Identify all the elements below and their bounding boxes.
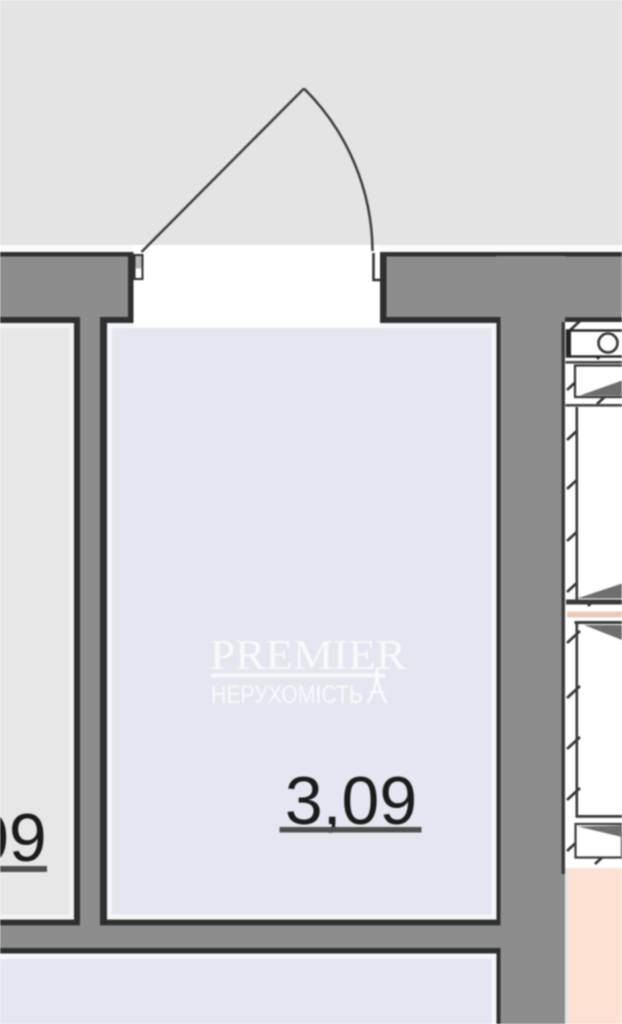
svg-text:09: 09: [0, 800, 47, 876]
svg-text:НЕРУХОМІСТЬ: НЕРУХОМІСТЬ: [211, 681, 363, 709]
